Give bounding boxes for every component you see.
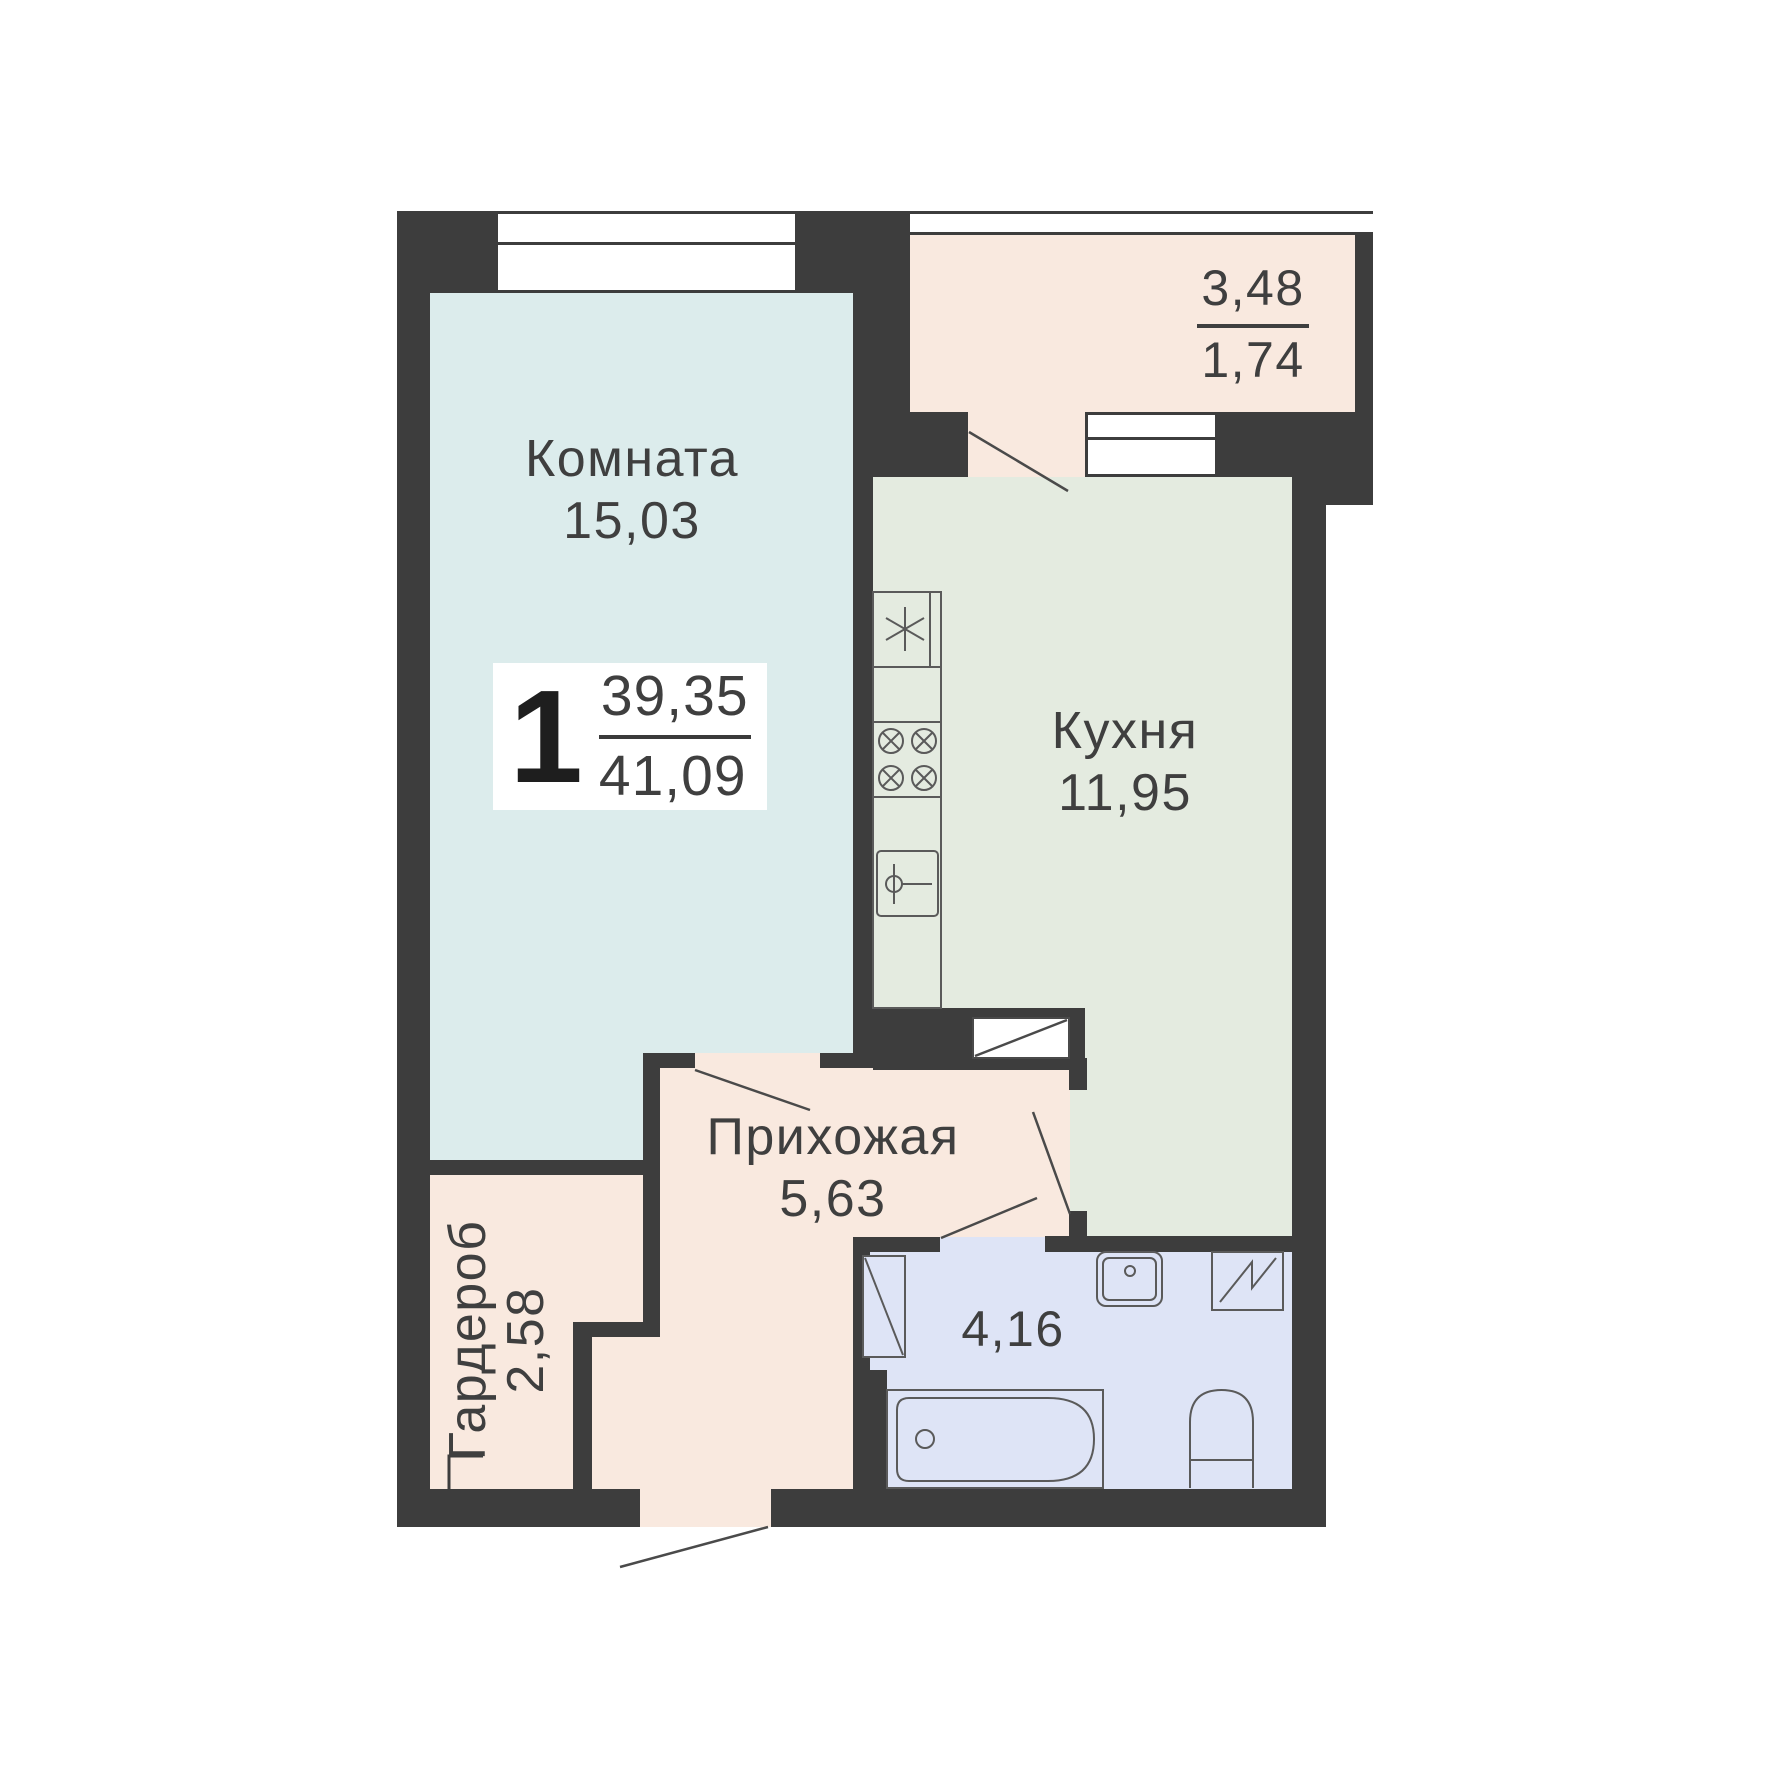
kitchen-door-swing-line (1033, 1112, 1070, 1214)
room-area: 2,58 (497, 1200, 555, 1480)
rooms-count: 1 (509, 671, 582, 803)
apartment-summary-box: 1 39,35 41,09 (493, 663, 767, 810)
room-name: Прихожая (683, 1106, 983, 1168)
hallway-label: Прихожая 5,63 (683, 1106, 983, 1230)
balcony-area-reduced: 1,74 (1143, 328, 1363, 392)
kitchen-label: Кухня 11,95 (975, 700, 1275, 824)
total-area: 41,09 (599, 739, 751, 810)
vent-shaft-icon (973, 1018, 1069, 1058)
fixtures-layer (0, 0, 1772, 1772)
living-area-total: 39,35 (599, 663, 751, 738)
room-door-swing-line (695, 1070, 810, 1110)
fridge-icon (873, 592, 941, 667)
bathtub-icon (887, 1390, 1103, 1488)
floor-plan: Комната 15,03 Кухня 11,95 Прихожая 5,63 … (0, 0, 1772, 1772)
balcony-door-swing-line (969, 432, 1068, 491)
entrance-door-swing-line (620, 1527, 768, 1567)
room-name: Комната (482, 428, 782, 490)
room-area: 11,95 (975, 762, 1275, 824)
bathroom-door-leaf (863, 1256, 905, 1357)
kitchen-sink-icon (877, 851, 938, 916)
bathroom-area-label: 4,16 (913, 1298, 1113, 1360)
wardrobe-label: Гардероб 2,58 (439, 1200, 555, 1480)
stove-icon (873, 722, 941, 797)
room-area: 4,16 (913, 1298, 1113, 1360)
room-area: 15,03 (482, 490, 782, 552)
room-area: 5,63 (683, 1168, 983, 1230)
room-name: Кухня (975, 700, 1275, 762)
washing-machine-icon (1212, 1252, 1283, 1310)
room-name: Гардероб (439, 1200, 497, 1480)
balcony-area-total: 3,48 (1197, 256, 1308, 328)
balcony-area-label: 3,48 1,74 (1143, 256, 1363, 392)
toilet-icon (1190, 1390, 1253, 1488)
living-room-label: Комната 15,03 (482, 428, 782, 552)
